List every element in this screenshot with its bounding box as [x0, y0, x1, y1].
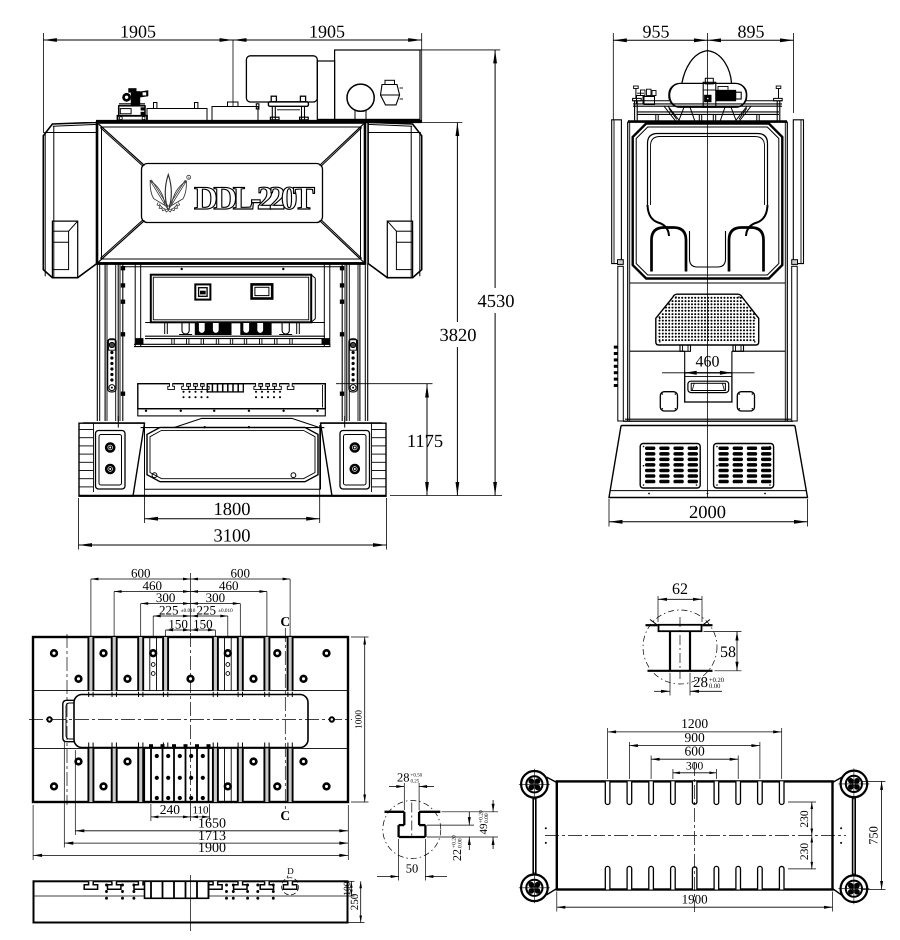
- svg-text:225: 225: [159, 603, 179, 618]
- svg-text:3820: 3820: [440, 326, 477, 346]
- svg-text:1905: 1905: [309, 21, 345, 41]
- svg-text:DDL-220T: DDL-220T: [194, 181, 316, 217]
- svg-text:1900: 1900: [682, 892, 708, 907]
- svg-text:D: D: [287, 866, 294, 876]
- svg-text:±0.010: ±0.010: [218, 608, 233, 614]
- svg-text:62: 62: [672, 581, 688, 598]
- svg-text:0.00: 0.00: [709, 683, 720, 690]
- svg-text:±0.010: ±0.010: [181, 608, 196, 614]
- svg-text:240: 240: [160, 802, 181, 817]
- svg-text:150: 150: [193, 617, 213, 632]
- svg-text:250: 250: [349, 893, 361, 910]
- svg-text:58: 58: [720, 644, 736, 661]
- svg-text:28: 28: [397, 771, 410, 785]
- svg-text:0.25: 0.25: [411, 779, 420, 785]
- svg-text:1000: 1000: [355, 710, 365, 729]
- svg-text:C: C: [280, 614, 290, 629]
- svg-text:1175: 1175: [407, 432, 443, 452]
- svg-text:49: 49: [478, 823, 490, 835]
- svg-text:1905: 1905: [120, 21, 156, 41]
- svg-text:1200: 1200: [681, 716, 708, 731]
- svg-text:100: 100: [343, 881, 353, 896]
- svg-text:0.00: 0.00: [484, 813, 490, 823]
- svg-text:28: 28: [693, 675, 708, 691]
- svg-text:3100: 3100: [214, 527, 251, 547]
- svg-text:460: 460: [696, 354, 720, 371]
- svg-text:1900: 1900: [198, 841, 226, 856]
- svg-text:750: 750: [867, 826, 881, 845]
- svg-text:230: 230: [799, 843, 811, 861]
- svg-text:230: 230: [799, 810, 811, 828]
- svg-text:1800: 1800: [214, 500, 251, 520]
- svg-text:110: 110: [192, 805, 209, 817]
- svg-text:4530: 4530: [478, 292, 515, 312]
- svg-text:150: 150: [168, 617, 188, 632]
- svg-text:+0.50: +0.50: [411, 773, 423, 779]
- svg-text:225: 225: [196, 603, 216, 618]
- svg-text:2000: 2000: [689, 503, 726, 523]
- svg-text:22: 22: [450, 849, 464, 861]
- svg-text:C: C: [280, 808, 290, 823]
- svg-text:50: 50: [406, 862, 419, 876]
- svg-text:600: 600: [684, 743, 705, 758]
- svg-text:895: 895: [738, 21, 765, 41]
- svg-text:0.00: 0.00: [458, 838, 464, 848]
- svg-text:955: 955: [643, 21, 670, 41]
